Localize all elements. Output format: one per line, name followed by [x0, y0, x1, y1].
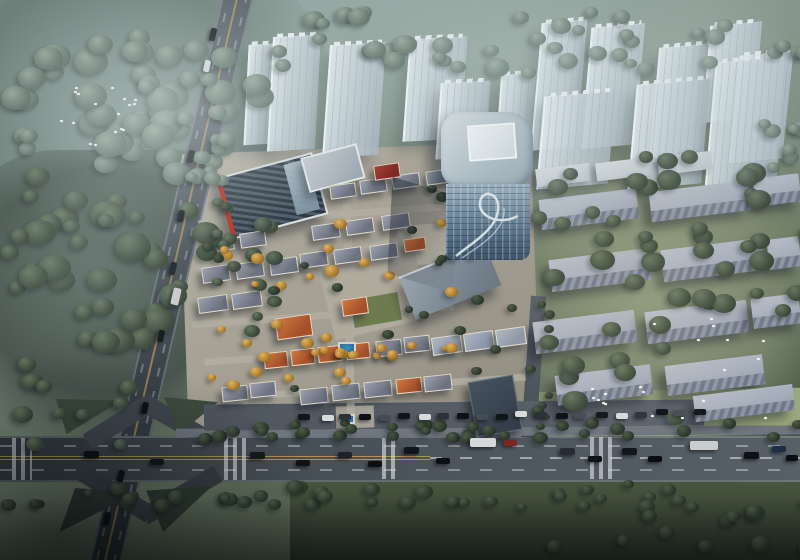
tree-mist — [623, 35, 640, 49]
tower-cap-notches — [414, 33, 463, 40]
tower-cap-notches — [721, 53, 781, 63]
tree-mist — [758, 119, 771, 129]
tower-skylight — [467, 122, 517, 161]
tree-mist — [521, 67, 536, 79]
tree-mist — [776, 40, 790, 52]
tower-cap-notches — [643, 76, 705, 85]
tower-cap-notches — [714, 19, 758, 27]
lane-dash-line — [0, 469, 800, 471]
tree-mist — [356, 6, 372, 19]
tower-cap-notches — [663, 40, 709, 48]
tower-cap-notches — [596, 20, 642, 28]
tree-mist — [361, 44, 379, 59]
tree-mist — [393, 35, 416, 54]
tree-dark2 — [268, 499, 281, 509]
tower-cap-notches — [445, 78, 487, 84]
tree-mist — [706, 29, 725, 44]
tree-mist — [551, 18, 570, 34]
facade-swoosh-lines — [446, 184, 530, 260]
tree-mist — [450, 61, 465, 73]
tree-mist — [513, 11, 529, 24]
tree-dark2 — [29, 499, 42, 509]
tree-dark2 — [34, 500, 45, 509]
tower-cap-notches — [550, 88, 611, 97]
center-dash-line — [430, 457, 800, 459]
tree-mist — [796, 44, 800, 61]
tree-mist — [767, 46, 783, 59]
tree-mist — [637, 62, 655, 76]
tree-mist — [558, 53, 579, 69]
tree-mist — [348, 8, 370, 26]
tree-mist — [624, 59, 636, 69]
ghost-tower — [702, 21, 762, 123]
double-yellow-line — [0, 456, 430, 460]
tree-mist — [701, 56, 718, 69]
lane-dash-line — [0, 445, 800, 447]
tree-dark2 — [222, 493, 238, 506]
tree-mist — [790, 47, 800, 58]
tree-mist — [792, 121, 800, 136]
tree-mist — [717, 19, 733, 32]
tree-mist — [399, 37, 417, 52]
tree-mist — [384, 52, 405, 69]
tree-mist — [484, 45, 498, 57]
tower-cap-notches — [504, 70, 534, 76]
tree-mist — [692, 28, 705, 38]
tree-mist — [486, 58, 510, 77]
tree-mist — [588, 46, 607, 61]
tower-cap-notches — [334, 39, 381, 45]
tree-mist — [530, 32, 546, 45]
tree-mist — [372, 45, 384, 55]
field-bottom — [290, 480, 800, 560]
tree-mist — [788, 124, 800, 134]
tree-mist — [585, 7, 598, 17]
dark-flat-building — [467, 374, 522, 437]
tree-mist — [432, 52, 447, 64]
tree-mist — [547, 42, 562, 54]
tree-mist — [614, 10, 630, 23]
ghost-tower — [322, 42, 386, 157]
tree-mist — [437, 55, 452, 67]
tree-mist — [335, 7, 356, 24]
main-road-horizontal — [0, 436, 800, 482]
tree-dark2 — [1, 499, 17, 511]
tree-dark2 — [220, 494, 231, 503]
tree-mist — [432, 37, 454, 54]
tree-mist — [316, 18, 331, 30]
parking-strip — [204, 399, 704, 430]
tree-dark2 — [218, 492, 232, 503]
tree-mist — [572, 25, 586, 36]
tower-cap-notches — [545, 17, 584, 24]
tree-mist — [364, 41, 386, 59]
tree-mist — [619, 29, 633, 41]
tree-dark2 — [254, 490, 268, 501]
tree-mist — [611, 48, 628, 61]
glass-tower-facade — [446, 184, 530, 260]
traffic-island — [146, 486, 212, 532]
tower-cap-notches — [744, 48, 790, 56]
aerial-rendering-canvas — [0, 0, 800, 560]
tree-dark2 — [237, 496, 251, 507]
tree-mist — [378, 43, 402, 62]
